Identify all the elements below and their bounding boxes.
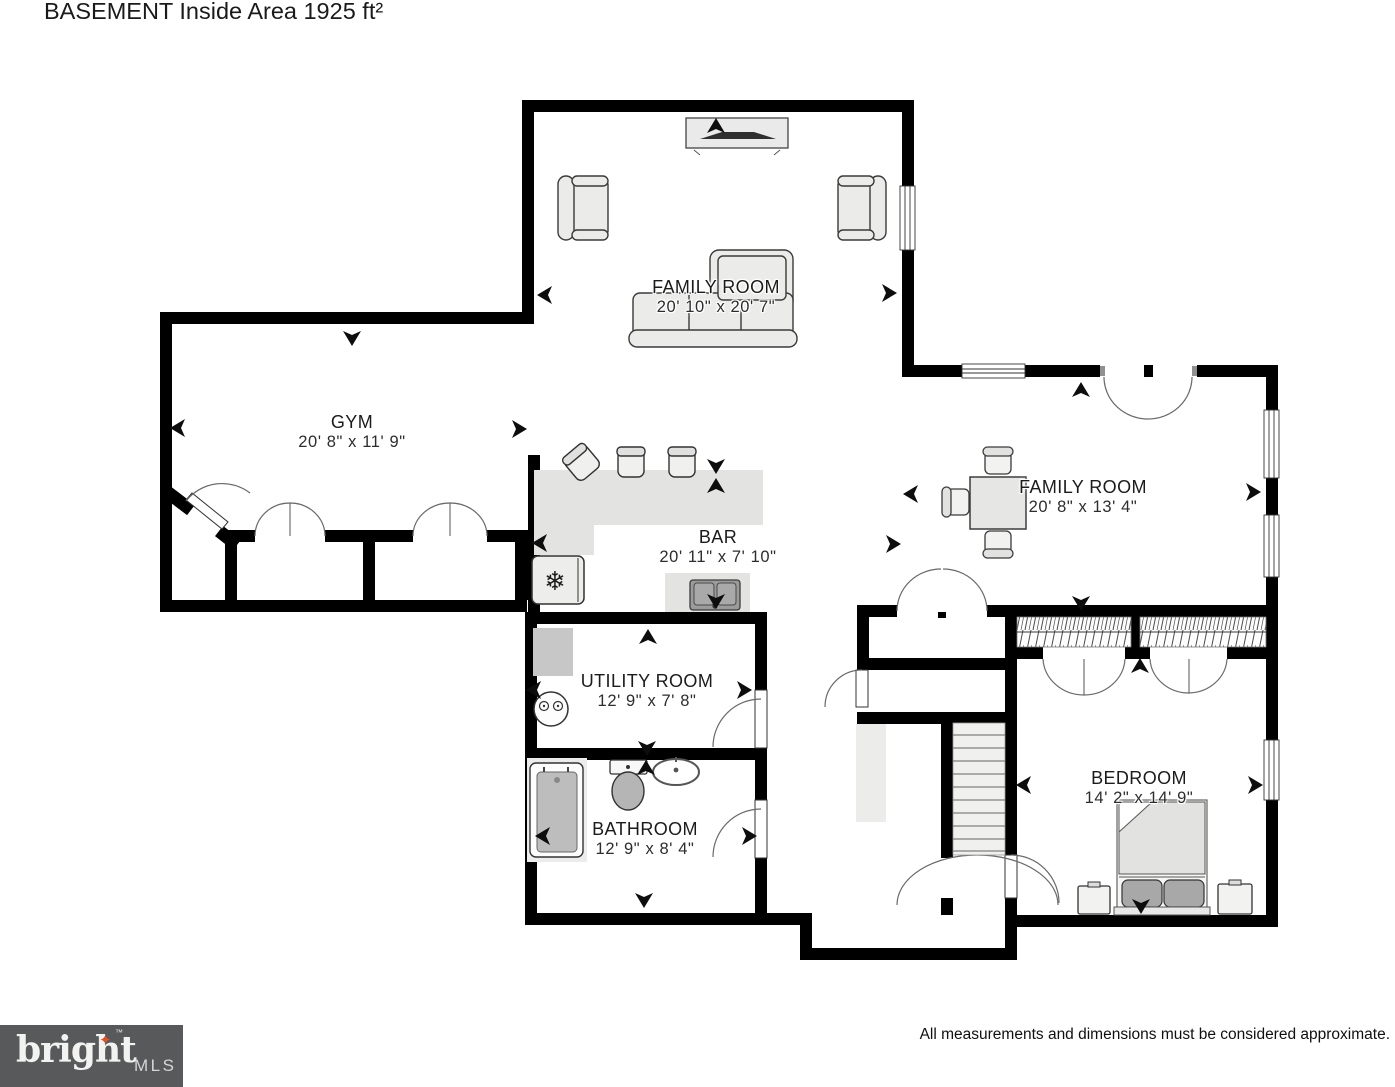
- room-dimensions: 12' 9" x 7' 8": [547, 692, 747, 711]
- star-icon: ✦: [99, 1031, 112, 1049]
- brightmls-logo: bright ✦ ™ MLS: [0, 1025, 183, 1087]
- room-dimensions: 20' 11" x 7' 10": [618, 548, 818, 567]
- room-name: BAR: [618, 527, 818, 548]
- room-label-family-room-lower: FAMILY ROOM 20' 8" x 13' 4": [983, 477, 1183, 518]
- freezer: ❄: [532, 556, 584, 604]
- bed: [1114, 800, 1210, 915]
- room-label-bar: BAR 20' 11" x 7' 10": [618, 527, 818, 568]
- armchair-left: [558, 176, 608, 240]
- room-name: BATHROOM: [545, 819, 745, 840]
- staircase: [953, 723, 1005, 855]
- room-label-bedroom: BEDROOM 14' 2" x 14' 9": [1039, 768, 1239, 809]
- nightstand-right: [1218, 880, 1252, 914]
- floorplan-page: ❄: [0, 0, 1395, 1087]
- armchair-right: [838, 176, 886, 240]
- bar-stools: [561, 442, 696, 483]
- room-dimensions: 20' 10" x 20' 7": [586, 298, 846, 317]
- toilet: [610, 760, 647, 810]
- room-name: BEDROOM: [1039, 768, 1239, 789]
- tv-console: [686, 118, 788, 155]
- room-name: UTILITY ROOM: [547, 671, 747, 692]
- room-dimensions: 14' 2" x 14' 9": [1039, 789, 1239, 808]
- room-dimensions: 12' 9" x 8' 4": [545, 840, 745, 859]
- chimney: [856, 724, 886, 822]
- room-label-gym: GYM 20' 8" x 11' 9": [252, 412, 452, 453]
- snowflake-icon: ❄: [544, 567, 566, 597]
- page-title: BASEMENT Inside Area 1925 ft²: [44, 0, 383, 25]
- room-label-bathroom: BATHROOM 12' 9" x 8' 4": [545, 819, 745, 860]
- hvac-unit: [533, 628, 573, 676]
- room-label-utility-room: UTILITY ROOM 12' 9" x 7' 8": [547, 671, 747, 712]
- room-dimensions: 20' 8" x 13' 4": [983, 498, 1183, 517]
- disclaimer-text: All measurements and dimensions must be …: [920, 1026, 1390, 1044]
- bathroom-sink: [653, 757, 699, 785]
- trademark-symbol: ™: [115, 1028, 123, 1037]
- room-dimensions: 20' 8" x 11' 9": [252, 433, 452, 452]
- room-name: GYM: [252, 412, 452, 433]
- room-name: FAMILY ROOM: [983, 477, 1183, 498]
- bedroom-closet-hatch: [1017, 617, 1266, 647]
- logo-suffix: MLS: [134, 1056, 176, 1076]
- room-name: FAMILY ROOM: [586, 277, 846, 298]
- room-label-family-room-upper: FAMILY ROOM 20' 10" x 20' 7": [586, 277, 846, 318]
- nightstand-left: [1078, 882, 1110, 914]
